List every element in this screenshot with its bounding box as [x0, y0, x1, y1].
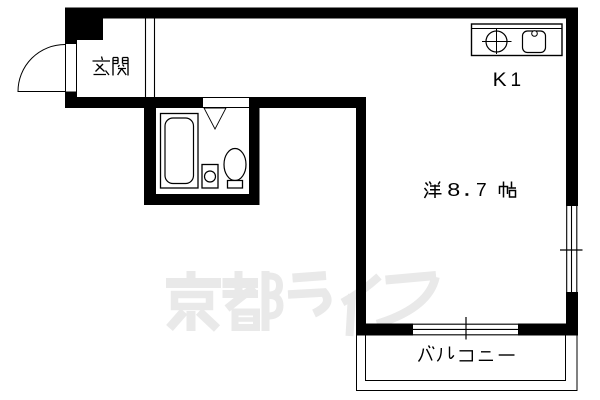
svg-text:1: 1 — [511, 70, 522, 91]
svg-text:8: 8 — [447, 180, 460, 200]
svg-text:7: 7 — [476, 180, 487, 200]
svg-text:K: K — [493, 70, 507, 91]
